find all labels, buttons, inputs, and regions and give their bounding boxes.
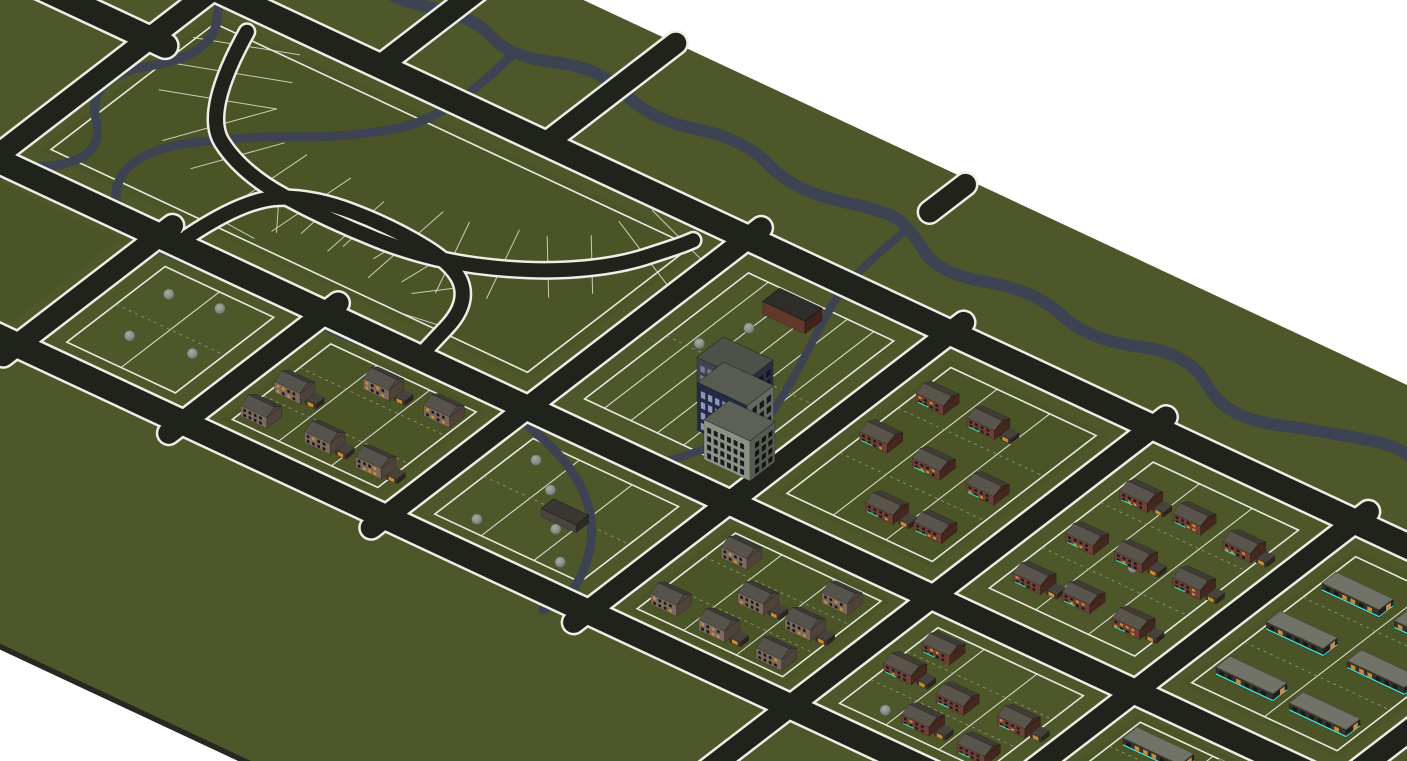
tree-sphere[interactable] xyxy=(555,557,566,568)
viewport-3d-scene[interactable] xyxy=(0,0,1407,761)
tree-sphere[interactable] xyxy=(744,323,755,334)
tree-sphere[interactable] xyxy=(163,289,174,300)
tree-sphere[interactable] xyxy=(187,348,198,359)
site-model-canvas[interactable] xyxy=(0,0,1407,761)
tree-sphere[interactable] xyxy=(531,455,542,466)
tree-sphere[interactable] xyxy=(694,338,705,349)
tree-sphere[interactable] xyxy=(214,303,225,314)
tree-sphere[interactable] xyxy=(471,514,482,525)
tree-sphere[interactable] xyxy=(880,705,891,716)
tree-sphere[interactable] xyxy=(124,330,135,341)
tree-sphere[interactable] xyxy=(545,485,556,496)
